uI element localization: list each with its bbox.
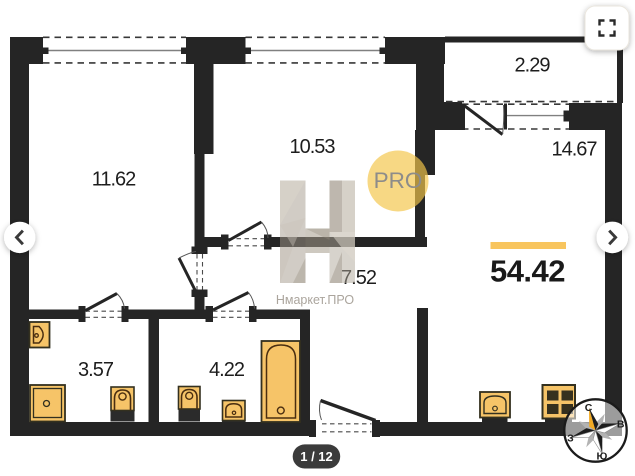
svg-text:С: С [585,402,593,414]
svg-text:11.62: 11.62 [92,169,136,191]
svg-text:54.42: 54.42 [490,254,565,289]
svg-text:PRO: PRO [374,168,423,193]
svg-text:В: В [617,419,625,431]
svg-text:3.57: 3.57 [78,359,114,381]
svg-text:10.53: 10.53 [289,136,335,158]
svg-text:4.22: 4.22 [209,359,245,381]
svg-text:Нмаркет.ПРО: Нмаркет.ПРО [276,293,355,307]
svg-text:14.67: 14.67 [551,139,597,161]
svg-text:З: З [567,433,574,445]
svg-text:1 / 12: 1 / 12 [300,449,333,464]
svg-text:2.29: 2.29 [515,55,551,77]
svg-text:Ю: Ю [596,450,607,462]
